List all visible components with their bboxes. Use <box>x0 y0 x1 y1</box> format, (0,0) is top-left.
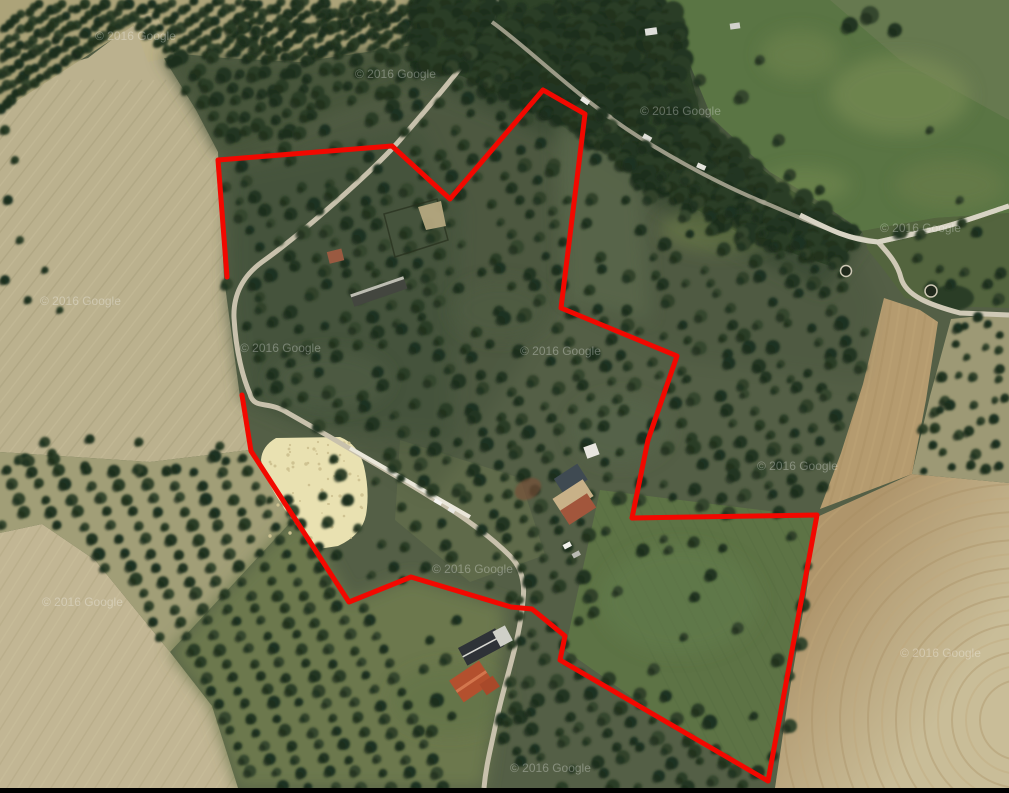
svg-text:© 2016 Google: © 2016 Google <box>880 221 961 235</box>
svg-text:© 2016 Google: © 2016 Google <box>432 562 513 576</box>
svg-text:© 2016 Google: © 2016 Google <box>757 459 838 473</box>
svg-text:© 2016 Google: © 2016 Google <box>40 294 121 308</box>
svg-text:© 2016 Google: © 2016 Google <box>520 344 601 358</box>
svg-text:© 2016 Google: © 2016 Google <box>240 341 321 355</box>
svg-text:© 2016 Google: © 2016 Google <box>640 104 721 118</box>
svg-text:© 2016 Google: © 2016 Google <box>900 646 981 660</box>
svg-text:© 2016 Google: © 2016 Google <box>42 595 123 609</box>
svg-text:© 2016 Google: © 2016 Google <box>510 761 591 775</box>
svg-text:© 2016 Google: © 2016 Google <box>355 67 436 81</box>
svg-text:© 2016 Google: © 2016 Google <box>95 29 176 43</box>
